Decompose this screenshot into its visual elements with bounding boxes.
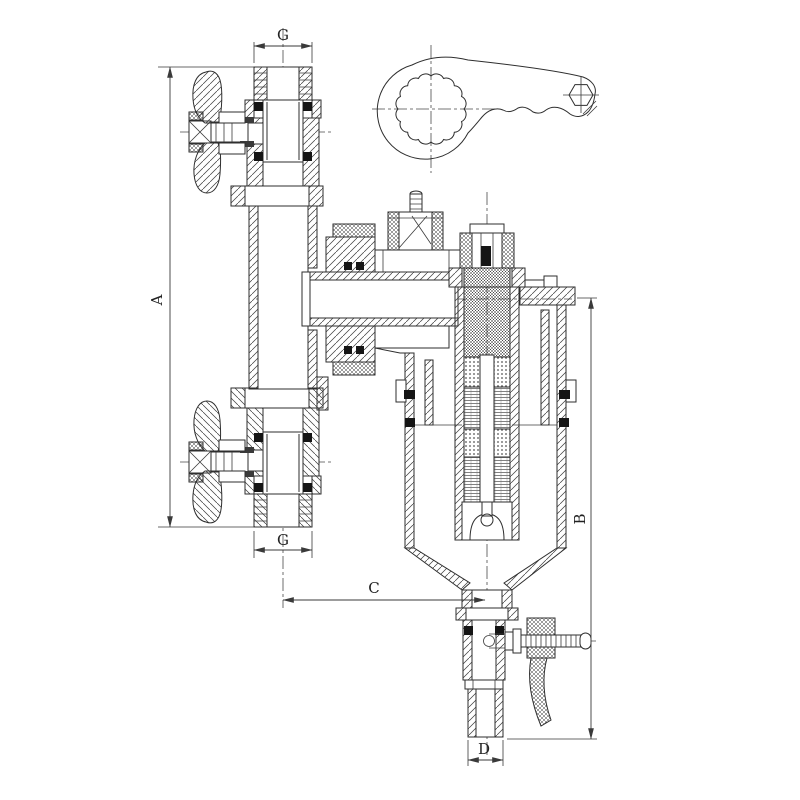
magnet-cartridge bbox=[455, 268, 519, 540]
o-ring-seal bbox=[254, 152, 263, 161]
inner-cup-wall bbox=[541, 310, 549, 425]
dim-label-a: A bbox=[148, 294, 166, 306]
magnet-rod bbox=[480, 355, 494, 505]
o-ring-seal bbox=[303, 102, 312, 111]
o-ring-seal bbox=[559, 390, 570, 399]
o-ring-seal bbox=[303, 152, 312, 161]
rod-top bbox=[481, 246, 491, 266]
dim-label-b: B bbox=[571, 513, 589, 524]
butterfly-handle bbox=[193, 71, 222, 123]
top-ball-valve bbox=[189, 67, 323, 206]
filter-cap bbox=[460, 233, 472, 268]
filter-cap bbox=[502, 233, 514, 268]
o-ring-seal bbox=[405, 418, 415, 427]
dim-label-g-top: G bbox=[277, 26, 289, 44]
o-ring-seal bbox=[464, 626, 473, 635]
valve-filter-assembly-drawing: G A G C B D bbox=[0, 0, 800, 800]
technical-drawing-page: G A G C B D bbox=[0, 0, 800, 800]
dim-label-d: D bbox=[478, 740, 490, 758]
o-ring-seal bbox=[559, 418, 569, 427]
o-ring-seal bbox=[254, 102, 263, 111]
bottom-ball-valve bbox=[189, 388, 323, 527]
cap-top-step bbox=[470, 224, 504, 233]
dim-label-g-bottom: G bbox=[277, 531, 289, 549]
bowl-flange bbox=[520, 287, 575, 305]
dim-label-c: C bbox=[368, 579, 379, 597]
o-ring-seal bbox=[404, 390, 415, 399]
inner-cup-wall bbox=[425, 360, 433, 425]
valve-stem bbox=[208, 122, 248, 142]
